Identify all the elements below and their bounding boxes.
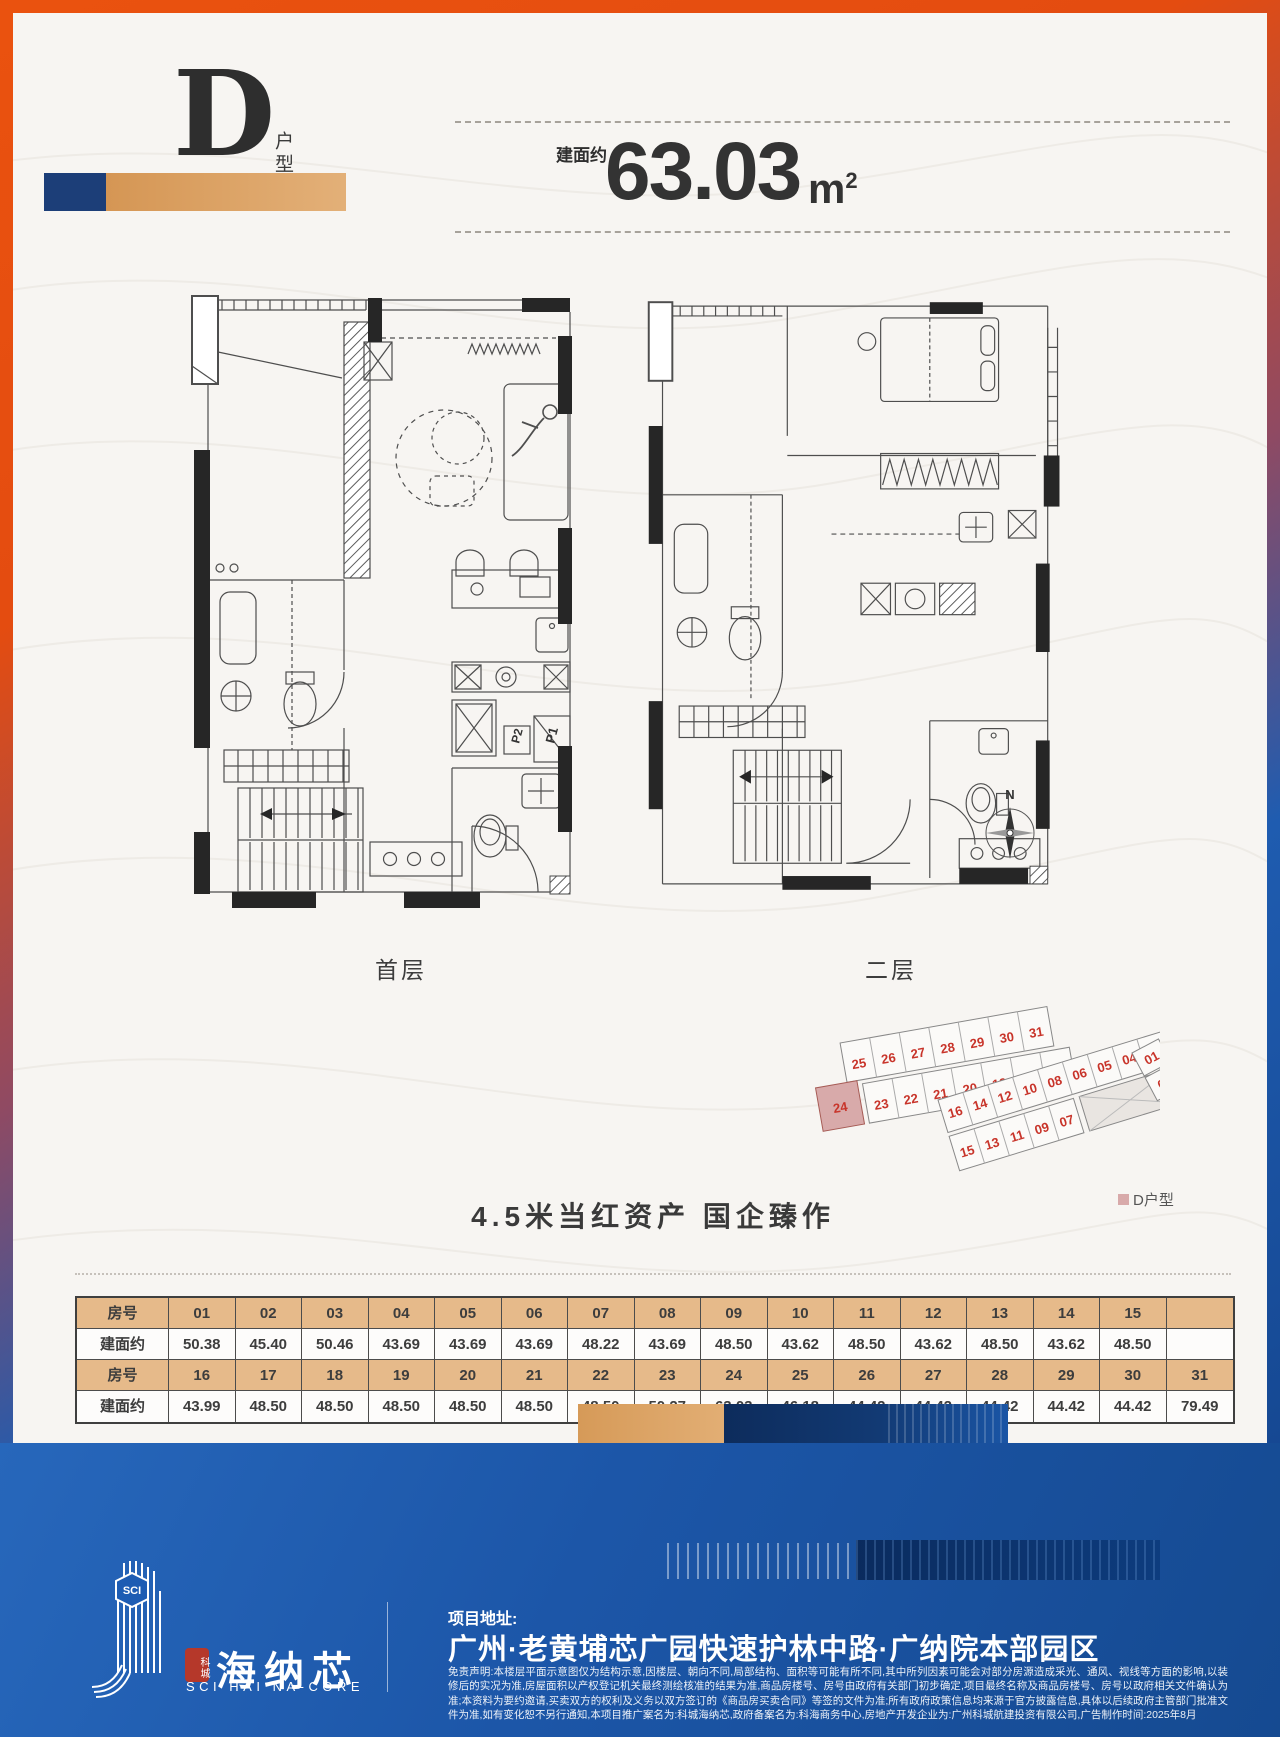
table-cell: 04 [369,1298,436,1329]
table-cell: 44.42 [1100,1391,1167,1422]
area-unit-m: m [808,165,845,212]
table-header-cell: 建面约 [77,1329,169,1360]
floor-plan-first-floor: P2 P1 [172,280,592,920]
table-cell: 10 [768,1298,835,1329]
project-address: 广州·老黄埔芯广园快速护林中路·广纳院本部园区 [448,1626,1099,1668]
table-dash-separator [75,1273,1231,1275]
table-cell: 17 [236,1360,303,1391]
table-header-cell: 建面约 [77,1391,169,1422]
footer: SCI 科城 海纳芯 SCI HAI NA-CORE 项目地址: 广州·老黄埔芯… [0,1443,1280,1737]
table-cell: 50.38 [169,1329,236,1360]
unit-number: 26 [880,1050,897,1067]
unit-number: 28 [939,1039,956,1056]
table-cell: 43.69 [635,1329,702,1360]
unit-number: 30 [998,1029,1015,1046]
table-cell: 19 [369,1360,436,1391]
table-cell: 48.50 [1100,1329,1167,1360]
footer-pinstripes-navy [856,1540,1160,1580]
brand-tower-logo-icon: SCI [90,1561,174,1701]
table-cell: 29 [1034,1360,1101,1391]
unit-number: 27 [910,1044,927,1061]
header-dash-top [455,121,1230,123]
footer-accent-bar-navy [724,1404,1008,1443]
unit-number: 23 [873,1096,890,1113]
table-cell: 21 [502,1360,569,1391]
table-cell: 43.69 [502,1329,569,1360]
table-cell: 26 [834,1360,901,1391]
unit-number: 25 [851,1055,868,1072]
table-cell: 44.42 [1034,1391,1101,1422]
table-cell: 48.50 [701,1329,768,1360]
table-cell: 45.40 [236,1329,303,1360]
table-cell: 22 [568,1360,635,1391]
table-cell [1167,1329,1234,1360]
brand-name-english: SCI HAI NA-CORE [186,1679,364,1694]
header-dash-bottom [455,231,1230,233]
p2-shaft-label: P2 [508,727,525,745]
table-cell: 43.69 [435,1329,502,1360]
accent-bar-tan [106,173,346,211]
table-cell: 27 [901,1360,968,1391]
table-cell: 20 [435,1360,502,1391]
table-cell: 79.49 [1167,1391,1234,1422]
site-key-plan: 25 26 27 28 29 30 31 24 23 22 21 20 19 1… [700,998,1160,1203]
unit-suffix: 户型 [269,131,296,177]
table-cell: 06 [502,1298,569,1329]
p1-shaft-label: P1 [542,726,561,745]
table-cell: 15 [1100,1298,1167,1329]
table-cell: 02 [236,1298,303,1329]
table-cell: 05 [435,1298,502,1329]
poster: D 户型 建面约 63.03 m2 [0,0,1280,1737]
footer-divider [387,1602,388,1692]
table-header-cell: 房号 [77,1360,169,1391]
table-cell: 25 [768,1360,835,1391]
table-cell: 43.62 [768,1329,835,1360]
table-cell: 16 [169,1360,236,1391]
second-floor-label: 二层 [865,951,917,985]
table-cell: 24 [701,1360,768,1391]
table-cell: 48.50 [302,1391,369,1422]
table-cell: 30 [1100,1360,1167,1391]
footer-pinstripes-light [667,1543,853,1579]
table-cell: 23 [635,1360,702,1391]
area-unit-exponent: 2 [845,168,857,193]
table-cell: 48.50 [435,1391,502,1422]
poster-card: D 户型 建面约 63.03 m2 [13,13,1267,1443]
compass-icon: N [975,785,1045,870]
table-cell: 43.62 [1034,1329,1101,1360]
table-cell: 48.50 [967,1329,1034,1360]
table-cell: 11 [834,1298,901,1329]
table-cell: 48.50 [502,1391,569,1422]
unit-number: 29 [969,1034,986,1051]
brand-seal: 科城 [185,1648,209,1682]
footer-accent-bar-tan [578,1404,724,1443]
accent-bar-navy [44,173,106,211]
accent-bar-stripes [888,1404,1008,1443]
table-cell: 48.50 [236,1391,303,1422]
table-cell: 43.99 [169,1391,236,1422]
compass-north-label: N [1005,787,1014,802]
area-value: 63.03 [605,131,800,213]
table-cell: 31 [1167,1360,1234,1391]
wall-fills [194,298,572,908]
tagline: 4.5米当红资产 国企臻作 [13,1195,1280,1235]
table-cell [1167,1298,1234,1329]
table-cell: 43.69 [369,1329,436,1360]
table-cell: 14 [1034,1298,1101,1329]
table-cell: 09 [701,1298,768,1329]
area-label: 建面约 [556,141,607,166]
table-header-cell: 房号 [77,1298,169,1329]
table-cell: 08 [635,1298,702,1329]
logo-badge-text: SCI [123,1585,141,1597]
table-cell: 50.46 [302,1329,369,1360]
table-cell: 12 [901,1298,968,1329]
unit-number: 31 [1028,1024,1045,1041]
table-cell: 07 [568,1298,635,1329]
table-cell: 48.50 [369,1391,436,1422]
table-cell: 13 [967,1298,1034,1329]
table-cell: 28 [967,1360,1034,1391]
table-cell: 18 [302,1360,369,1391]
table-cell: 43.62 [901,1329,968,1360]
table-cell: 03 [302,1298,369,1329]
area-unit: m2 [808,165,858,213]
disclaimer-text: 免责声明:本楼层平面示意图仅为结构示意,因楼层、朝向不同,局部结构、面积等可能有… [448,1665,1228,1723]
unit-number: 22 [902,1090,919,1107]
table-cell: 48.22 [568,1329,635,1360]
table-cell: 01 [169,1298,236,1329]
table-cell: 48.50 [834,1329,901,1360]
unit-letter: D [173,55,275,173]
first-floor-label: 首层 [375,951,427,985]
